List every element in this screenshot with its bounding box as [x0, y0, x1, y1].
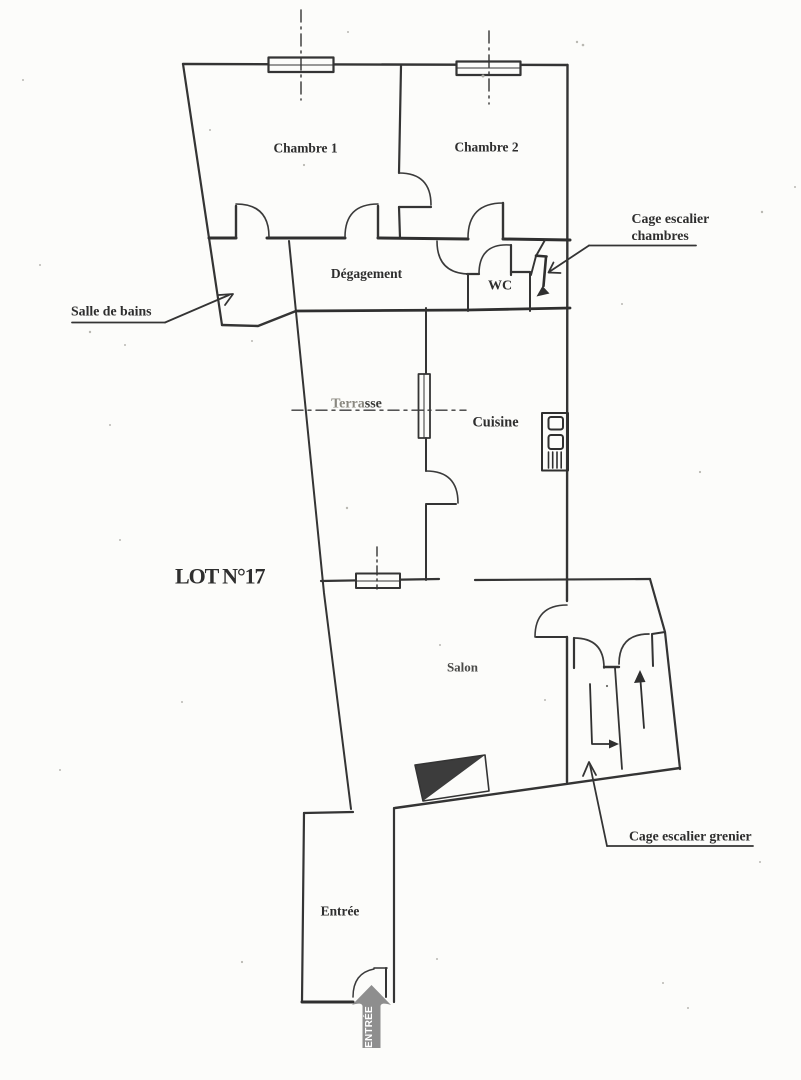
svg-text:Entrée: Entrée: [321, 904, 360, 919]
svg-text:Salle de bains: Salle de bains: [71, 304, 152, 319]
svg-text:Chambre 1: Chambre 1: [273, 141, 337, 156]
svg-text:Cuisine: Cuisine: [472, 415, 518, 431]
svg-text:chambres: chambres: [632, 228, 690, 243]
svg-text:Salon: Salon: [447, 660, 479, 675]
svg-text:Cage escalier grenier: Cage escalier grenier: [629, 829, 752, 844]
svg-text:Cage escalier: Cage escalier: [632, 211, 710, 226]
svg-text:WC: WC: [488, 279, 512, 294]
svg-text:LOT N°17: LOT N°17: [175, 564, 266, 589]
svg-text:Dégagement: Dégagement: [331, 266, 403, 281]
svg-text:Terrasse: Terrasse: [331, 397, 382, 412]
svg-text:ENTRÉE: ENTRÉE: [362, 1006, 375, 1048]
svg-text:Chambre 2: Chambre 2: [454, 140, 518, 155]
